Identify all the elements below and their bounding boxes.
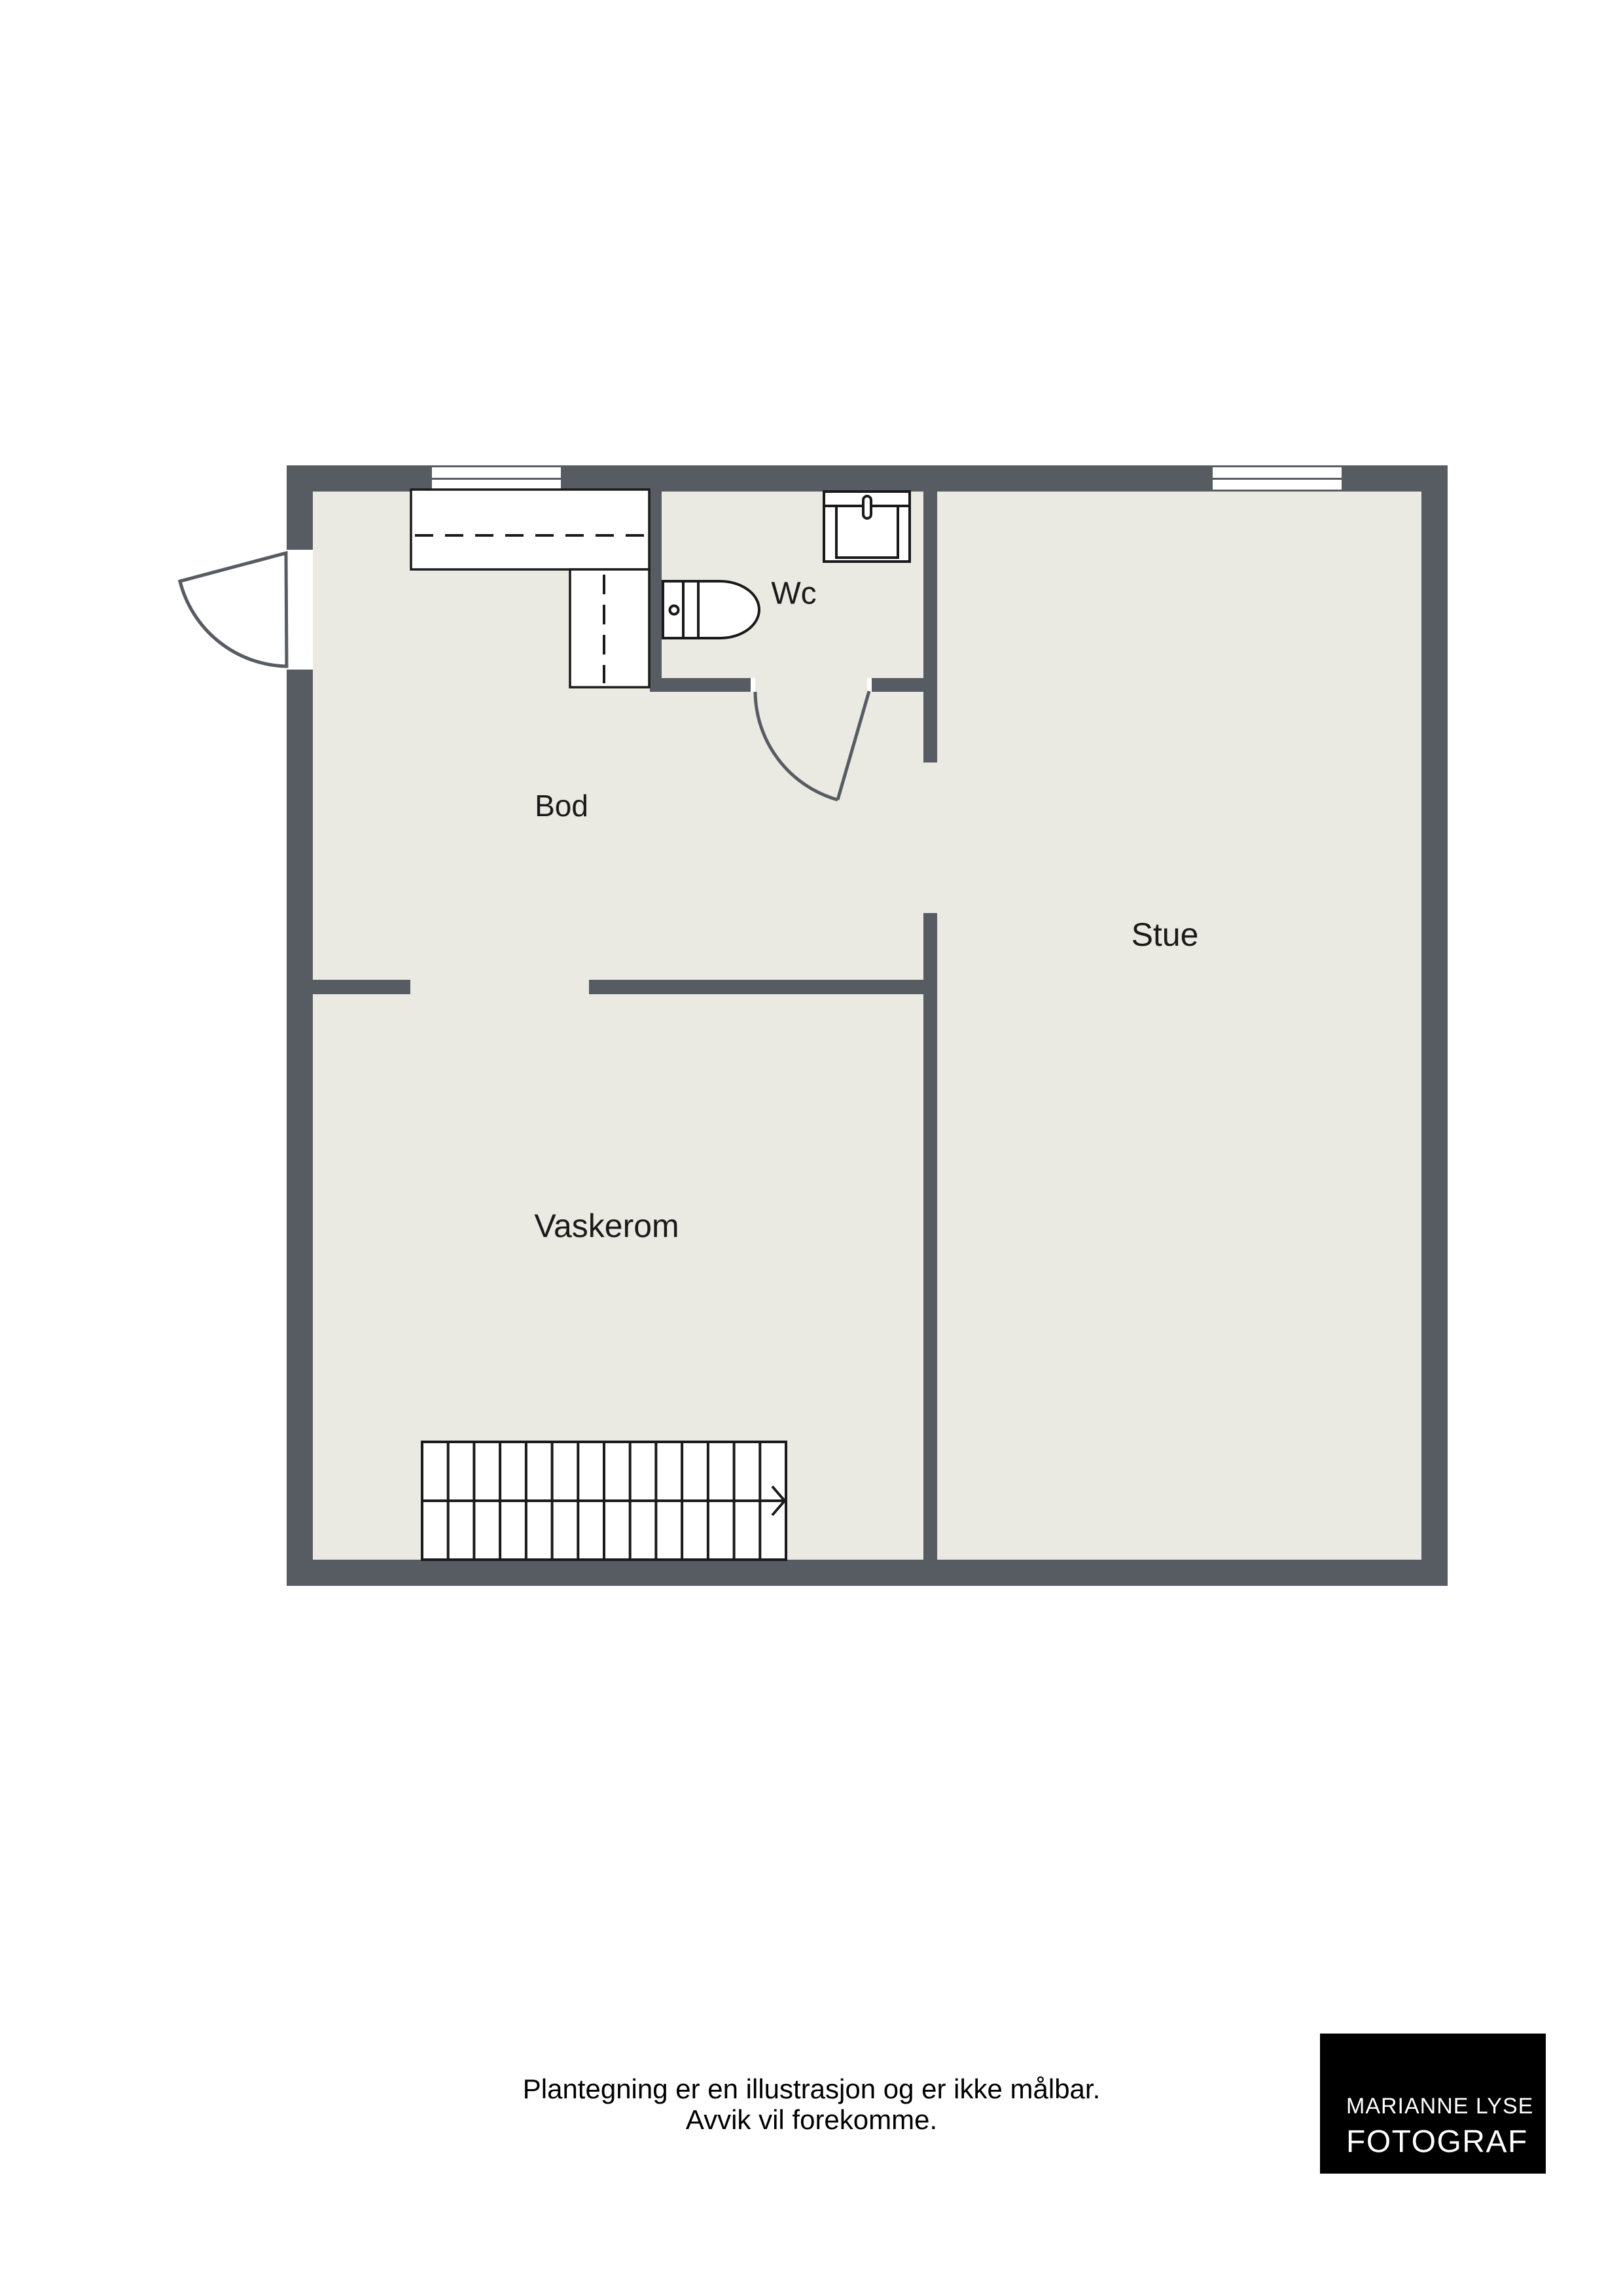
cabinet-icon <box>570 569 649 687</box>
sink-faucet-icon <box>863 496 871 518</box>
floorplan-page: Bod Wc Stue Vaskerom Plantegning er en i… <box>0 0 1623 2296</box>
photographer-logo: MARIANNE LYSE FOTOGRAF <box>1320 2034 1546 2174</box>
wc-door-arc <box>755 692 838 800</box>
entry-door-icon <box>180 553 287 666</box>
wc-door-leaf <box>838 691 869 800</box>
room-label-bod: Bod <box>535 788 588 823</box>
wardrobe-icon <box>411 490 649 569</box>
logo-title: FOTOGRAF <box>1346 2126 1546 2158</box>
staircase-icon <box>422 1442 786 1560</box>
logo-name: MARIANNE LYSE <box>1346 2095 1546 2117</box>
room-label-vaskerom: Vaskerom <box>534 1207 679 1245</box>
room-label-stue: Stue <box>1132 916 1199 954</box>
fixtures-layer <box>0 0 1623 2296</box>
room-label-wc: Wc <box>771 576 816 612</box>
